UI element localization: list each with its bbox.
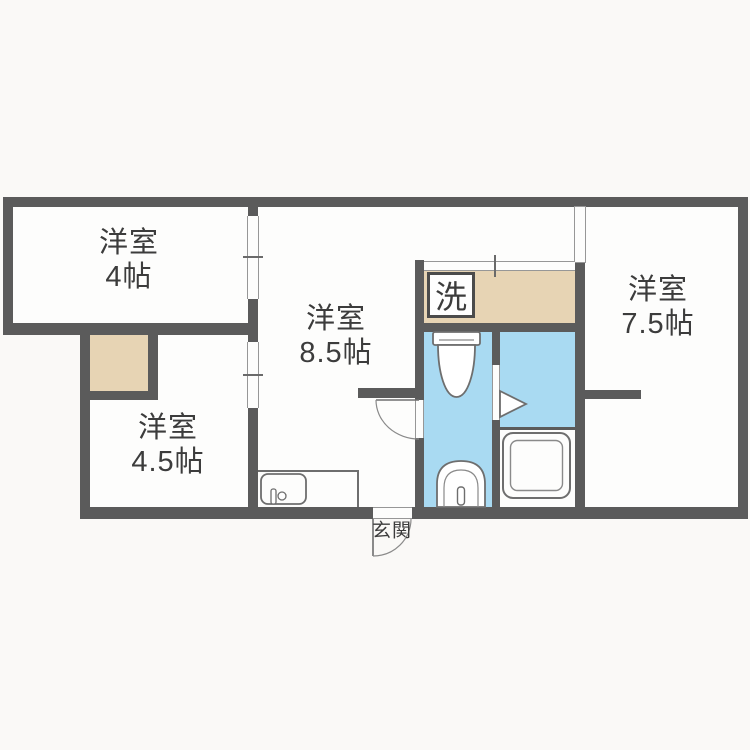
bath-door-opening (492, 365, 500, 420)
room-name: 洋室 (131, 411, 204, 445)
washing-machine-box: 洗 (427, 272, 475, 318)
washing-machine-label: 洗 (435, 272, 467, 318)
room-western-7-5-floor (585, 207, 738, 507)
wall-stub-room75 (585, 390, 641, 399)
room-western-8-5-label: 洋室 8.5帖 (299, 302, 372, 370)
entrance-label: 玄関 (372, 516, 412, 543)
toilet-door-opening (415, 400, 424, 438)
wall-exterior-right (738, 197, 748, 519)
door-opening-room75 (574, 206, 586, 263)
wall-room4-bottom (3, 323, 258, 335)
wall-exterior-bottom-left (80, 507, 373, 519)
bathroom-floor (500, 332, 575, 429)
room-western-4-5-label: 洋室 4.5帖 (131, 411, 204, 479)
floor-plan: 洗 洋室 4帖 洋室 8.5帖 洋室 7.5帖 洋室 4.5帖 玄関 (0, 0, 750, 750)
wall-center-left-b (248, 298, 258, 343)
wall-toilet-bath-lower (492, 420, 500, 507)
wall-exterior-left-upper (3, 197, 13, 335)
sliding-door-room4-tick (243, 256, 263, 258)
room-size: 8.5帖 (299, 336, 372, 370)
room-name: 洋室 (299, 302, 372, 336)
room-name: 洋室 (99, 226, 159, 260)
room-size: 7.5帖 (621, 307, 694, 341)
room-western-7-5-label: 洋室 7.5帖 (621, 273, 694, 341)
room-western-4-label: 洋室 4帖 (99, 226, 159, 294)
wall-exterior-left-lower (80, 331, 90, 519)
closet-floor (90, 335, 148, 391)
room-size: 4.5帖 (131, 445, 204, 479)
laundry-opening-tick (494, 255, 496, 277)
wall-room75-left (575, 262, 585, 519)
sliding-door-room45-tick (243, 374, 263, 376)
wall-center-left-c (248, 407, 258, 519)
laundry-opening (424, 261, 575, 271)
bathtub-edge-line (500, 427, 575, 430)
wall-stub-hall (358, 388, 422, 398)
room-name: 洋室 (621, 273, 694, 307)
wall-laundry-bottom (415, 323, 585, 332)
wall-exterior-top (3, 197, 748, 207)
toilet-room-floor (424, 332, 492, 507)
wall-closet-bottom (80, 391, 158, 400)
bathtub-area-floor (500, 431, 575, 507)
wall-toilet-bath-upper (492, 332, 500, 365)
wall-toilet-left-lower (415, 438, 424, 507)
room-size: 4帖 (99, 260, 159, 294)
